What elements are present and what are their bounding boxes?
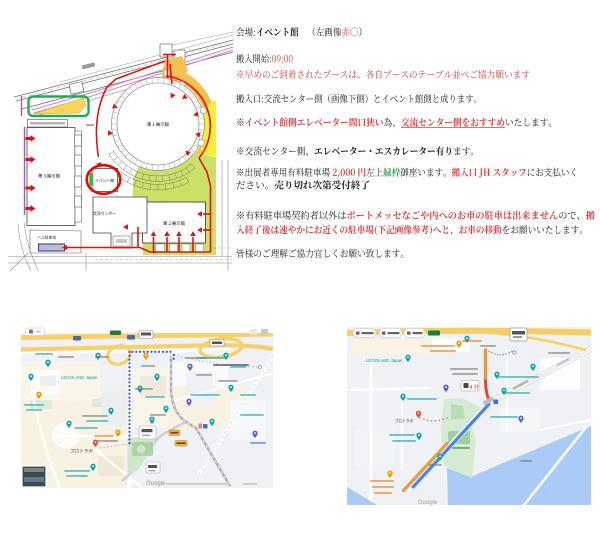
svg-text:Google: Google	[146, 481, 166, 487]
svg-text:4: 4	[470, 385, 473, 391]
svg-text:Google: Google	[418, 500, 438, 506]
svg-text:LEGOLAND Japan: LEGOLAND Japan	[61, 375, 98, 380]
svg-text:LEGOLAND Japan: LEGOLAND Japan	[366, 358, 403, 363]
